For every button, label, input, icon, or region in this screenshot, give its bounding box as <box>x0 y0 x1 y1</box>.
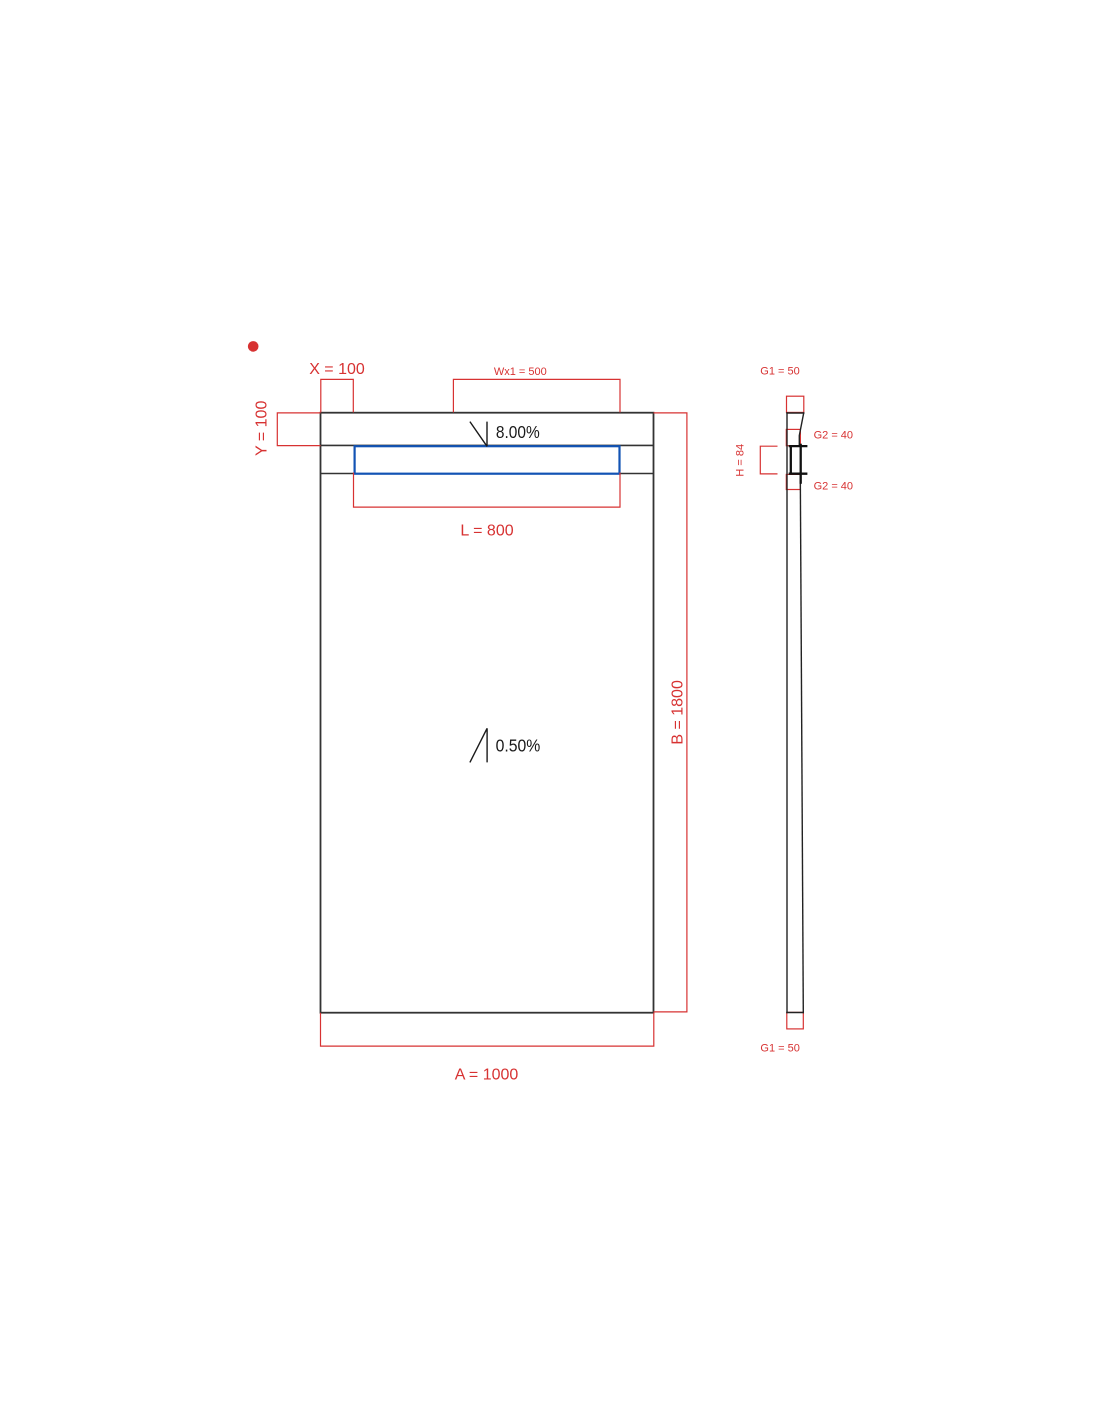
svg-text:Y = 100: Y = 100 <box>253 401 270 456</box>
svg-text:X = 100: X = 100 <box>309 361 365 378</box>
svg-text:8.00%: 8.00% <box>496 422 540 442</box>
svg-text:Wx1 = 500: Wx1 = 500 <box>494 366 547 378</box>
svg-text:A = 1000: A = 1000 <box>455 1067 519 1084</box>
svg-text:B = 1800: B = 1800 <box>670 680 687 745</box>
svg-text:0.50%: 0.50% <box>496 736 541 756</box>
svg-text:L = 800: L = 800 <box>460 523 513 540</box>
svg-text:G1 = 50: G1 = 50 <box>760 1043 799 1055</box>
svg-text:G1 = 50: G1 = 50 <box>760 366 799 378</box>
svg-text:G2 = 40: G2 = 40 <box>814 429 853 441</box>
svg-text:H = 84: H = 84 <box>735 444 747 477</box>
svg-text:G2 = 40: G2 = 40 <box>814 480 853 492</box>
